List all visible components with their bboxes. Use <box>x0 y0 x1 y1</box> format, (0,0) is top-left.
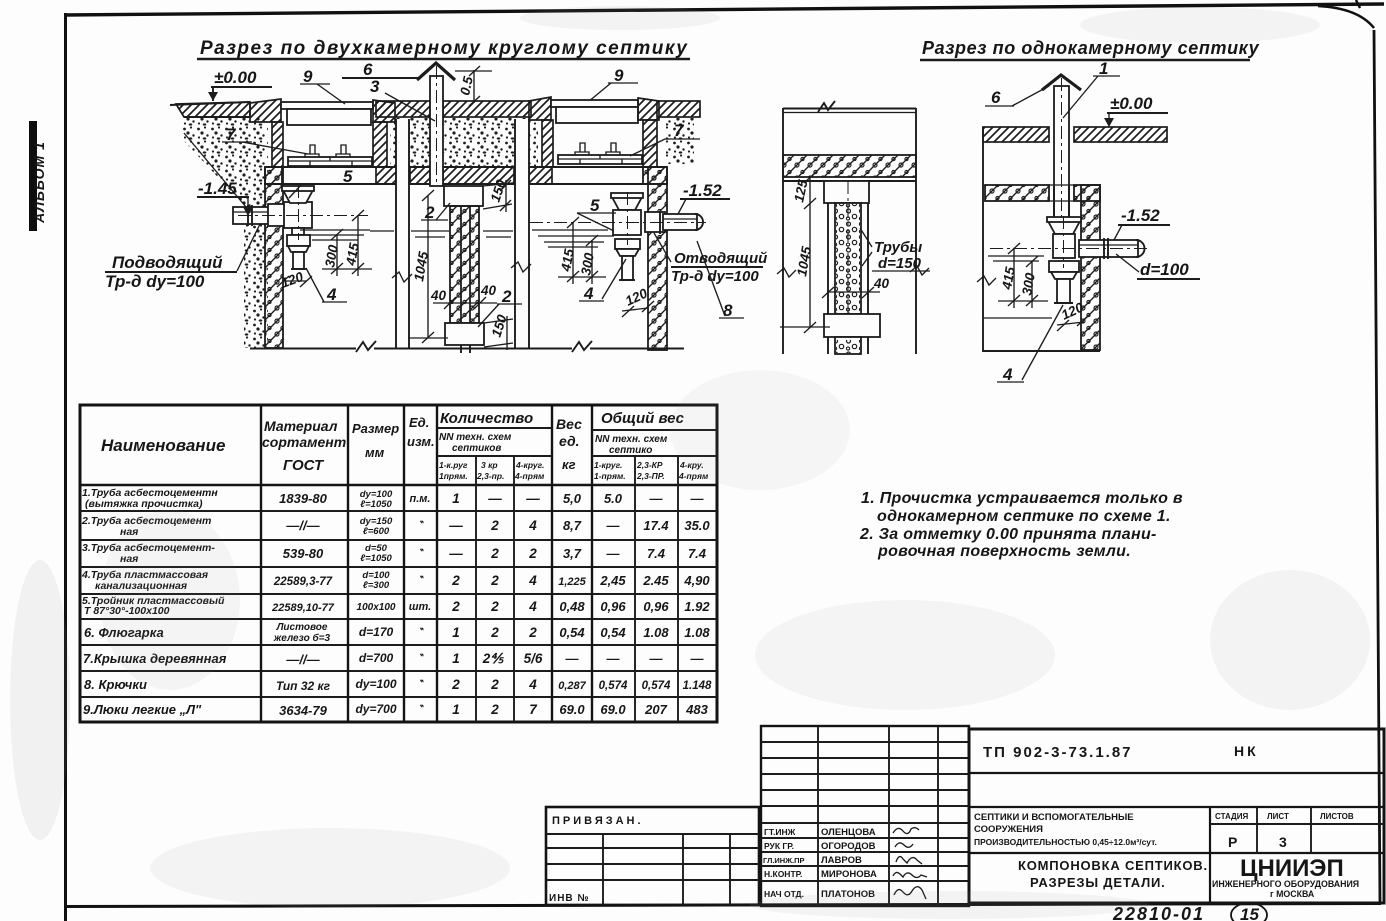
svg-text:СЕПТИКИ И ВСПОМОГАТЕЛЬНЫЕ: СЕПТИКИ И ВСПОМОГАТЕЛЬНЫЕ <box>974 812 1134 823</box>
svg-text:1,225: 1,225 <box>558 576 586 588</box>
svg-text:1-круг.: 1-круг. <box>594 460 622 470</box>
svg-text:ℓ=600: ℓ=600 <box>363 526 390 537</box>
svg-text:‶: ‶ <box>418 679 424 691</box>
svg-text:40: 40 <box>873 276 890 291</box>
svg-text:22589,10-77: 22589,10-77 <box>271 602 335 614</box>
svg-text:5.0: 5.0 <box>604 491 623 506</box>
svg-text:ЦНИИЭП: ЦНИИЭП <box>1240 855 1344 882</box>
svg-text:0,96: 0,96 <box>643 599 669 614</box>
svg-text:Вес: Вес <box>556 416 582 432</box>
svg-text:dу=100: dу=100 <box>355 677 396 691</box>
svg-text:NN техн. схем: NN техн. схем <box>439 432 512 443</box>
svg-text:ЛАВРОВ: ЛАВРОВ <box>821 855 862 866</box>
svg-text:—: — <box>448 546 463 561</box>
svg-text:г МОСКВА: г МОСКВА <box>1270 889 1315 899</box>
svg-text:‶: ‶ <box>418 548 424 560</box>
svg-text:7.4: 7.4 <box>688 546 707 561</box>
svg-text:3 кр: 3 кр <box>481 460 498 470</box>
svg-text:1. Прочистка устраивается толь: 1. Прочистка устраивается только в <box>861 490 1183 507</box>
svg-text:3,7: 3,7 <box>563 546 582 561</box>
svg-text:Разрез по двухкамерному кругло: Разрез по двухкамерному круглому септику <box>200 38 688 59</box>
svg-text:0,54: 0,54 <box>600 625 626 640</box>
svg-text:2: 2 <box>490 625 499 640</box>
svg-text:120: 120 <box>623 285 650 308</box>
svg-text:2: 2 <box>490 518 499 533</box>
svg-text:кг: кг <box>562 457 576 472</box>
svg-text:—//—: —//— <box>285 518 320 533</box>
svg-text:1-прям.: 1-прям. <box>594 471 626 481</box>
svg-text:-1.52: -1.52 <box>1121 206 1160 225</box>
svg-text:изм.: изм. <box>407 434 435 449</box>
svg-text:415: 415 <box>343 241 362 267</box>
svg-text:3: 3 <box>1279 834 1287 850</box>
svg-text:ГТ.ИНЖ: ГТ.ИНЖ <box>764 827 796 837</box>
svg-text:2. За отметку 0.00 принята пла: 2. За отметку 0.00 принята плани- <box>859 526 1157 543</box>
svg-text:—: — <box>487 491 502 506</box>
svg-text:ПРОИЗВОДИТЕЛЬНОСТЬЮ 0,45÷12.0м: ПРОИЗВОДИТЕЛЬНОСТЬЮ 0,45÷12.0м³/сут. <box>974 837 1157 847</box>
svg-text:NN техн. схем: NN техн. схем <box>595 434 668 445</box>
svg-text:1.08: 1.08 <box>684 625 710 640</box>
svg-text:шт.: шт. <box>409 601 431 613</box>
svg-text:4-круг.: 4-круг. <box>515 460 544 470</box>
svg-text:1: 1 <box>452 491 460 506</box>
svg-text:4,90: 4,90 <box>683 573 710 588</box>
svg-text:ЛИСТ: ЛИСТ <box>1267 812 1289 821</box>
svg-text:Материал: Материал <box>264 418 338 434</box>
svg-text:1: 1 <box>452 625 460 640</box>
svg-text:1045: 1045 <box>794 245 814 278</box>
svg-text:3634-79: 3634-79 <box>279 703 327 718</box>
svg-text:1.08: 1.08 <box>643 625 669 640</box>
svg-text:5,0: 5,0 <box>563 491 582 506</box>
svg-text:—: — <box>525 491 540 506</box>
svg-text:483: 483 <box>685 702 708 717</box>
svg-text:ПРИВЯЗАН.: ПРИВЯЗАН. <box>552 815 644 827</box>
svg-text:п.м.: п.м. <box>410 493 431 505</box>
svg-text:ГЛ.ИНЖ.ПР: ГЛ.ИНЖ.ПР <box>763 856 804 865</box>
svg-text:17.4: 17.4 <box>643 518 669 533</box>
svg-text:септико: септико <box>609 445 652 456</box>
svg-text:0,54: 0,54 <box>559 625 585 640</box>
svg-text:ТП 902-3-73.1.87: ТП 902-3-73.1.87 <box>983 744 1133 761</box>
svg-text:—: — <box>649 491 664 506</box>
svg-text:ГОСТ: ГОСТ <box>283 457 325 474</box>
svg-text:ЛИСТОВ: ЛИСТОВ <box>1320 812 1354 821</box>
svg-text:dу=700: dу=700 <box>355 702 396 716</box>
svg-text:207: 207 <box>644 702 667 717</box>
svg-text:2: 2 <box>490 573 499 588</box>
svg-text:±0.00: ±0.00 <box>1110 94 1153 113</box>
svg-text:ОЛЕНЦОВА: ОЛЕНЦОВА <box>821 827 876 838</box>
svg-text:9.Люки легкие „Л": 9.Люки легкие „Л" <box>83 702 202 717</box>
svg-text:МИРОНОВА: МИРОНОВА <box>821 869 877 880</box>
svg-text:15: 15 <box>1240 905 1259 921</box>
svg-text:Количество: Количество <box>440 410 533 427</box>
svg-text:2: 2 <box>490 702 499 717</box>
svg-text:35.0: 35.0 <box>684 518 710 533</box>
svg-text:Размер: Размер <box>352 421 399 436</box>
svg-text:7: 7 <box>529 702 538 717</box>
svg-text:КОМПОНОВКА СЕПТИКОВ.: КОМПОНОВКА СЕПТИКОВ. <box>1018 858 1208 873</box>
svg-text:300: 300 <box>578 251 597 276</box>
svg-text:Отводящий: Отводящий <box>674 250 767 267</box>
svg-text:3: 3 <box>370 77 380 96</box>
svg-text:СТАДИЯ: СТАДИЯ <box>1215 812 1248 821</box>
svg-text:4-прям: 4-прям <box>514 471 545 481</box>
svg-text:2: 2 <box>424 203 435 222</box>
svg-text:415: 415 <box>999 265 1018 291</box>
svg-text:РАЗРЕЗЫ ДЕТАЛИ.: РАЗРЕЗЫ ДЕТАЛИ. <box>1030 875 1166 890</box>
svg-text:0.5: 0.5 <box>457 75 476 97</box>
svg-text:1-к.руг: 1-к.руг <box>439 460 468 470</box>
svg-text:5/6: 5/6 <box>524 651 543 666</box>
svg-text:1: 1 <box>452 651 460 666</box>
svg-text:Тр-д dу=100: Тр-д dу=100 <box>671 268 759 285</box>
svg-text:‶: ‶ <box>418 704 424 716</box>
svg-text:4: 4 <box>528 518 537 533</box>
svg-text:‶: ‶ <box>418 520 424 532</box>
svg-text:—: — <box>690 491 705 506</box>
svg-text:ровочная поверхность земли.: ровочная поверхность земли. <box>877 543 1131 560</box>
svg-text:0,574: 0,574 <box>599 680 628 692</box>
svg-text:6: 6 <box>991 88 1001 107</box>
svg-text:‶: ‶ <box>418 627 424 639</box>
svg-text:2⅘: 2⅘ <box>482 651 505 666</box>
svg-text:—//—: —//— <box>285 652 320 667</box>
svg-text:2: 2 <box>451 677 460 692</box>
svg-text:ед.: ед. <box>559 433 580 449</box>
svg-text:4: 4 <box>528 677 537 692</box>
svg-text:40: 40 <box>430 288 447 303</box>
svg-text:±0.00: ±0.00 <box>214 68 257 87</box>
svg-text:2: 2 <box>490 599 499 614</box>
svg-text:d=170: d=170 <box>359 625 394 639</box>
svg-text:1839-80: 1839-80 <box>279 491 327 506</box>
svg-text:Листовое: Листовое <box>276 622 328 633</box>
svg-text:АЛЬБОМ 1: АЛЬБОМ 1 <box>31 141 47 224</box>
svg-text:1: 1 <box>452 702 460 717</box>
svg-text:539-80: 539-80 <box>283 546 324 561</box>
svg-text:Трубы: Трубы <box>874 239 922 256</box>
svg-text:ℓ=1050: ℓ=1050 <box>360 553 392 564</box>
svg-text:ℓ=300: ℓ=300 <box>363 580 390 591</box>
svg-text:69.0: 69.0 <box>559 702 585 717</box>
svg-text:4: 4 <box>583 284 594 303</box>
svg-text:7: 7 <box>674 121 685 140</box>
svg-text:8: 8 <box>723 301 733 320</box>
svg-text:2,45: 2,45 <box>599 573 626 588</box>
svg-text:1прям.: 1прям. <box>439 471 468 481</box>
svg-text:100х100: 100х100 <box>357 602 396 613</box>
svg-text:5: 5 <box>590 196 600 215</box>
svg-text:2: 2 <box>490 546 499 561</box>
svg-text:—: — <box>448 518 463 533</box>
svg-text:7.4: 7.4 <box>647 546 666 561</box>
svg-text:0,574: 0,574 <box>642 680 671 692</box>
svg-text:2,3-ПР.: 2,3-ПР. <box>636 471 665 481</box>
svg-text:Тр-д dу=100: Тр-д dу=100 <box>105 272 205 291</box>
svg-text:—: — <box>690 651 705 666</box>
svg-text:4: 4 <box>528 599 537 614</box>
svg-text:2: 2 <box>490 677 499 692</box>
svg-text:1.92: 1.92 <box>684 599 710 614</box>
svg-text:—: — <box>565 651 580 666</box>
svg-text:4: 4 <box>1002 365 1013 384</box>
svg-text:2: 2 <box>528 625 537 640</box>
svg-text:9: 9 <box>303 67 313 86</box>
svg-text:‶: ‶ <box>418 653 424 665</box>
svg-text:Ед.: Ед. <box>409 415 429 430</box>
svg-text:2: 2 <box>451 599 460 614</box>
svg-text:2,3-КР: 2,3-КР <box>636 460 663 470</box>
svg-text:септиков: септиков <box>452 443 501 454</box>
svg-text:8,7: 8,7 <box>563 518 582 533</box>
svg-text:ℓ=1050: ℓ=1050 <box>360 499 392 510</box>
svg-text:300: 300 <box>322 243 341 268</box>
svg-text:0,96: 0,96 <box>600 599 626 614</box>
svg-text:‶: ‶ <box>418 575 424 587</box>
svg-text:2.45: 2.45 <box>642 573 669 588</box>
svg-text:9: 9 <box>614 66 624 85</box>
svg-text:22589,3-77: 22589,3-77 <box>273 576 333 588</box>
svg-text:—: — <box>606 546 621 561</box>
svg-text:НК: НК <box>1234 743 1259 759</box>
svg-text:2: 2 <box>528 546 537 561</box>
svg-text:Подводящий: Подводящий <box>112 253 223 272</box>
svg-text:ОГОРОДОВ: ОГОРОДОВ <box>821 841 876 852</box>
svg-text:Тип 32 кг: Тип 32 кг <box>276 679 331 693</box>
svg-text:d=700: d=700 <box>359 651 394 665</box>
svg-text:1.148: 1.148 <box>683 680 712 692</box>
svg-text:d=150: d=150 <box>878 255 922 272</box>
svg-text:железо б=3: железо б=3 <box>273 632 331 644</box>
svg-text:ИНВ №: ИНВ № <box>549 893 590 904</box>
svg-text:—: — <box>606 651 621 666</box>
svg-text:мм: мм <box>365 445 385 460</box>
svg-text:-1.52: -1.52 <box>683 181 722 200</box>
svg-text:5: 5 <box>343 167 353 186</box>
svg-text:300: 300 <box>1019 271 1038 296</box>
svg-text:0,287: 0,287 <box>558 680 586 692</box>
svg-text:ИНЖЕНЕРНОГО ОБОРУДОВАНИЯ: ИНЖЕНЕРНОГО ОБОРУДОВАНИЯ <box>1212 879 1359 889</box>
svg-text:2,3-пр.: 2,3-пр. <box>476 471 504 481</box>
svg-text:—: — <box>649 651 664 666</box>
svg-text:—: — <box>606 518 621 533</box>
svg-text:СООРУЖЕНИЯ: СООРУЖЕНИЯ <box>974 824 1043 835</box>
svg-text:1: 1 <box>1099 59 1108 78</box>
svg-text:2: 2 <box>451 573 460 588</box>
svg-text:сортамент: сортамент <box>262 434 346 450</box>
svg-text:40: 40 <box>480 283 497 298</box>
svg-text:7: 7 <box>226 125 237 144</box>
svg-text:-1.45: -1.45 <box>198 179 237 198</box>
svg-text:Н.КОНТР.: Н.КОНТР. <box>764 869 802 879</box>
svg-text:2: 2 <box>501 287 512 306</box>
svg-text:0,48: 0,48 <box>559 599 585 614</box>
svg-text:(вытяжка прочистка): (вытяжка прочистка) <box>85 498 203 510</box>
svg-text:d=100: d=100 <box>1140 260 1189 279</box>
svg-text:однокамерном септике по схеме: однокамерном септике по схеме 1. <box>877 508 1171 525</box>
svg-text:415: 415 <box>558 247 577 273</box>
svg-text:4: 4 <box>326 285 337 304</box>
svg-text:69.0: 69.0 <box>600 702 626 717</box>
svg-text:4: 4 <box>528 573 537 588</box>
svg-text:Р: Р <box>1228 834 1237 850</box>
svg-text:Наименование: Наименование <box>101 436 225 455</box>
svg-text:РУК ГР.: РУК ГР. <box>764 841 794 851</box>
